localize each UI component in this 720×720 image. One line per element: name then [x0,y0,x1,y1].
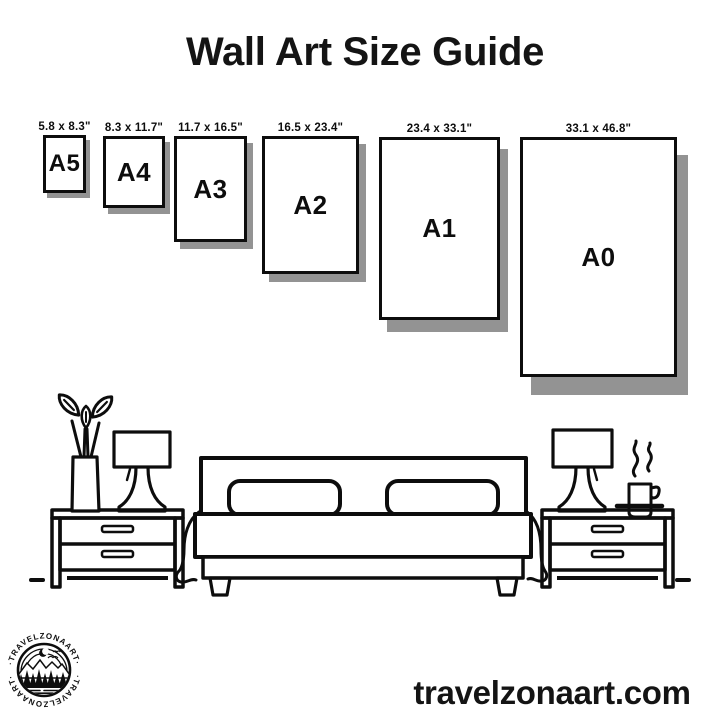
size-name-a2: A2 [293,190,327,221]
size-name-a0: A0 [581,242,615,273]
size-frame-a1: 23.4 x 33.1" A1 [379,137,500,320]
table-lamp-icon [114,432,170,511]
bedroom-illustration [0,385,720,600]
vase-with-leaves-icon [55,391,116,511]
size-name-a3: A3 [193,174,227,205]
size-dimensions-a2: 16.5 x 23.4" [278,122,343,134]
coffee-cup-steam-icon [617,441,662,517]
bed-leg [497,578,517,595]
website-url: travelzonaart.com [402,674,702,712]
size-name-a5: A5 [49,150,81,178]
size-dimensions-a5: 5.8 x 8.3" [38,121,90,133]
size-frame-a4: 8.3 x 11.7" A4 [103,136,165,208]
page-title: Wall Art Size Guide [10,30,720,75]
brand-logo: ·TRAVELZONAART· ·TRAVELZONAART· [4,630,84,710]
bed-leg [210,578,230,595]
size-frame-a5: 5.8 x 8.3" A5 [43,135,86,193]
bed-with-pillows-icon [176,458,546,595]
size-dimensions-a4: 8.3 x 11.7" [105,122,163,134]
table-lamp-icon [553,430,612,511]
size-frame-a3: 11.7 x 16.5" A3 [174,136,247,242]
size-dimensions-a3: 11.7 x 16.5" [178,122,243,134]
size-dimensions-a1: 23.4 x 33.1" [407,123,472,135]
size-frame-a2: 16.5 x 23.4" A2 [262,136,359,274]
size-name-a4: A4 [117,157,151,188]
size-name-a1: A1 [422,213,456,244]
nightstand-icon [542,510,673,587]
size-dimensions-a0: 33.1 x 46.8" [566,123,631,135]
wall-art-size-guide-poster: Wall Art Size Guide 5.8 x 8.3" A5 8.3 x … [0,0,720,720]
nightstand-icon [52,510,183,587]
size-frame-a0: 33.1 x 46.8" A0 [520,137,677,377]
